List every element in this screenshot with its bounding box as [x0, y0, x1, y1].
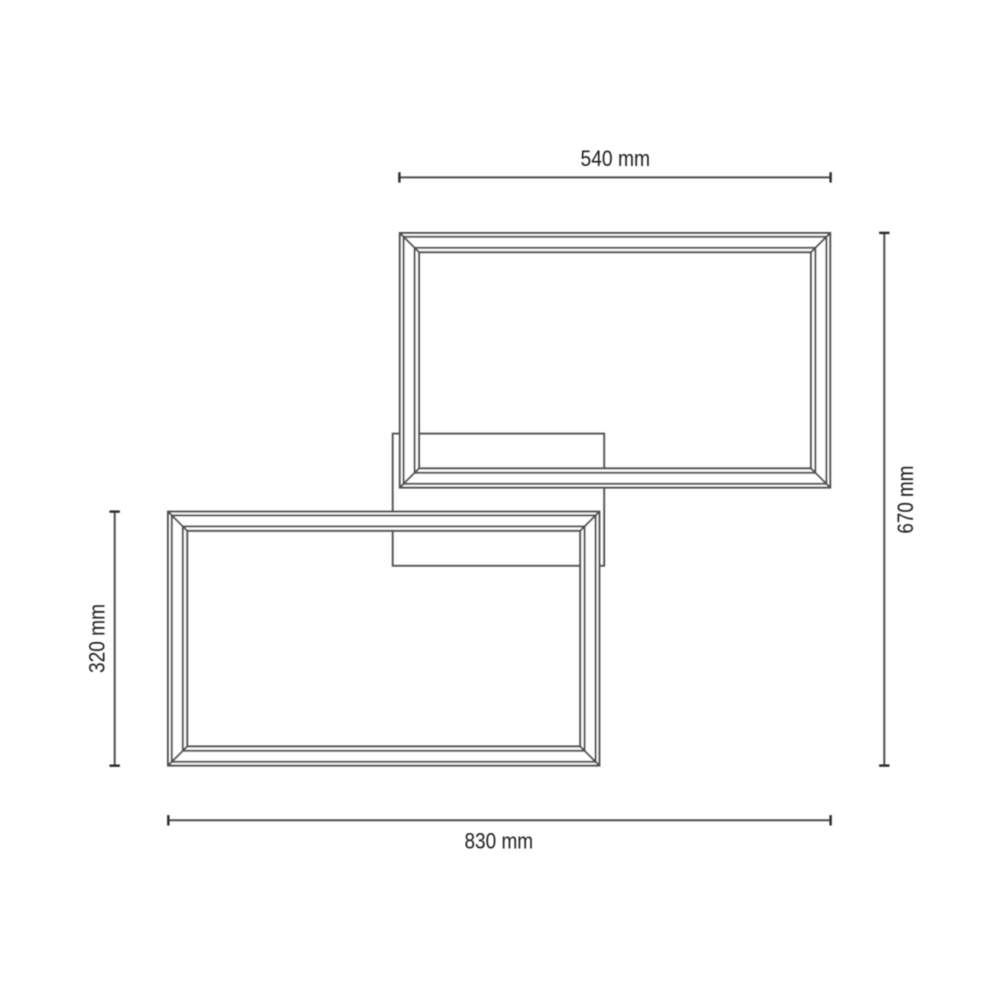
- svg-text:830 mm: 830 mm: [465, 828, 534, 853]
- svg-text:320 mm: 320 mm: [85, 604, 110, 673]
- svg-text:670 mm: 670 mm: [893, 466, 918, 534]
- svg-text:540 mm: 540 mm: [581, 146, 651, 171]
